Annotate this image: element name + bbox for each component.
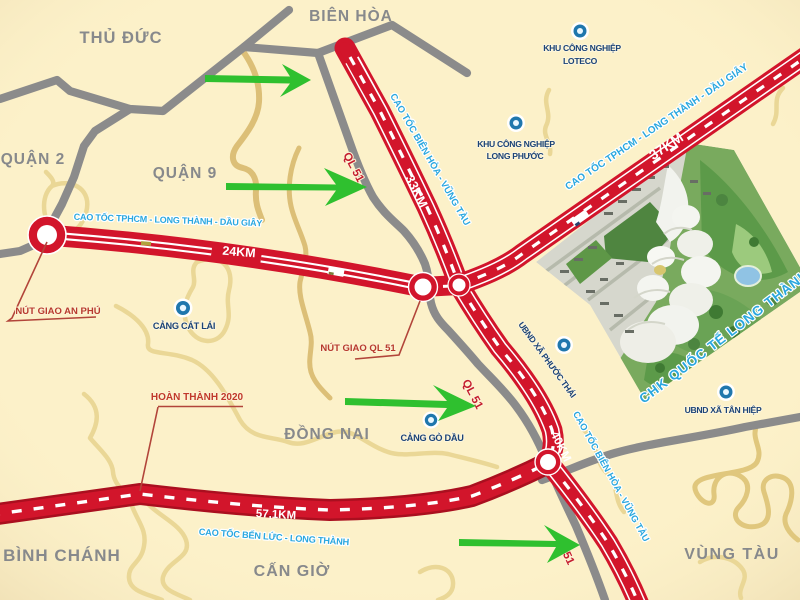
svg-text:QUẬN 9: QUẬN 9 bbox=[153, 164, 218, 182]
svg-text:QUẬN 2: QUẬN 2 bbox=[1, 150, 66, 168]
svg-text:HOÀN THÀNH 2020: HOÀN THÀNH 2020 bbox=[151, 390, 244, 403]
svg-text:NÚT GIAO AN PHÚ: NÚT GIAO AN PHÚ bbox=[15, 305, 100, 317]
svg-text:CẢNG GÒ DẦU: CẢNG GÒ DẦU bbox=[400, 432, 464, 443]
svg-text:57,1KM: 57,1KM bbox=[256, 508, 297, 522]
svg-text:UBND XÃ TÂN HIỆP: UBND XÃ TÂN HIỆP bbox=[685, 404, 762, 415]
svg-text:BÌNH CHÁNH: BÌNH CHÁNH bbox=[3, 546, 121, 565]
svg-text:NÚT GIAO QL 51: NÚT GIAO QL 51 bbox=[320, 342, 396, 354]
svg-text:ĐỒNG NAI: ĐỒNG NAI bbox=[284, 425, 370, 443]
svg-text:LONG PHƯỚC: LONG PHƯỚC bbox=[487, 150, 544, 161]
svg-text:KHU CÔNG NGHIỆP: KHU CÔNG NGHIỆP bbox=[477, 138, 555, 149]
svg-text:LOTECO: LOTECO bbox=[563, 56, 598, 66]
svg-text:CẢNG CÁT LÁI: CẢNG CÁT LÁI bbox=[153, 320, 215, 331]
svg-text:THỦ ĐỨC: THỦ ĐỨC bbox=[79, 28, 162, 47]
svg-text:BIÊN HÒA: BIÊN HÒA bbox=[309, 7, 393, 25]
svg-text:CẤN GIỜ: CẤN GIỜ bbox=[254, 561, 331, 580]
svg-text:VÙNG TÀU: VÙNG TÀU bbox=[684, 544, 780, 563]
svg-text:KHU CÔNG NGHIỆP: KHU CÔNG NGHIỆP bbox=[543, 42, 621, 53]
svg-text:24KM: 24KM bbox=[222, 244, 256, 261]
